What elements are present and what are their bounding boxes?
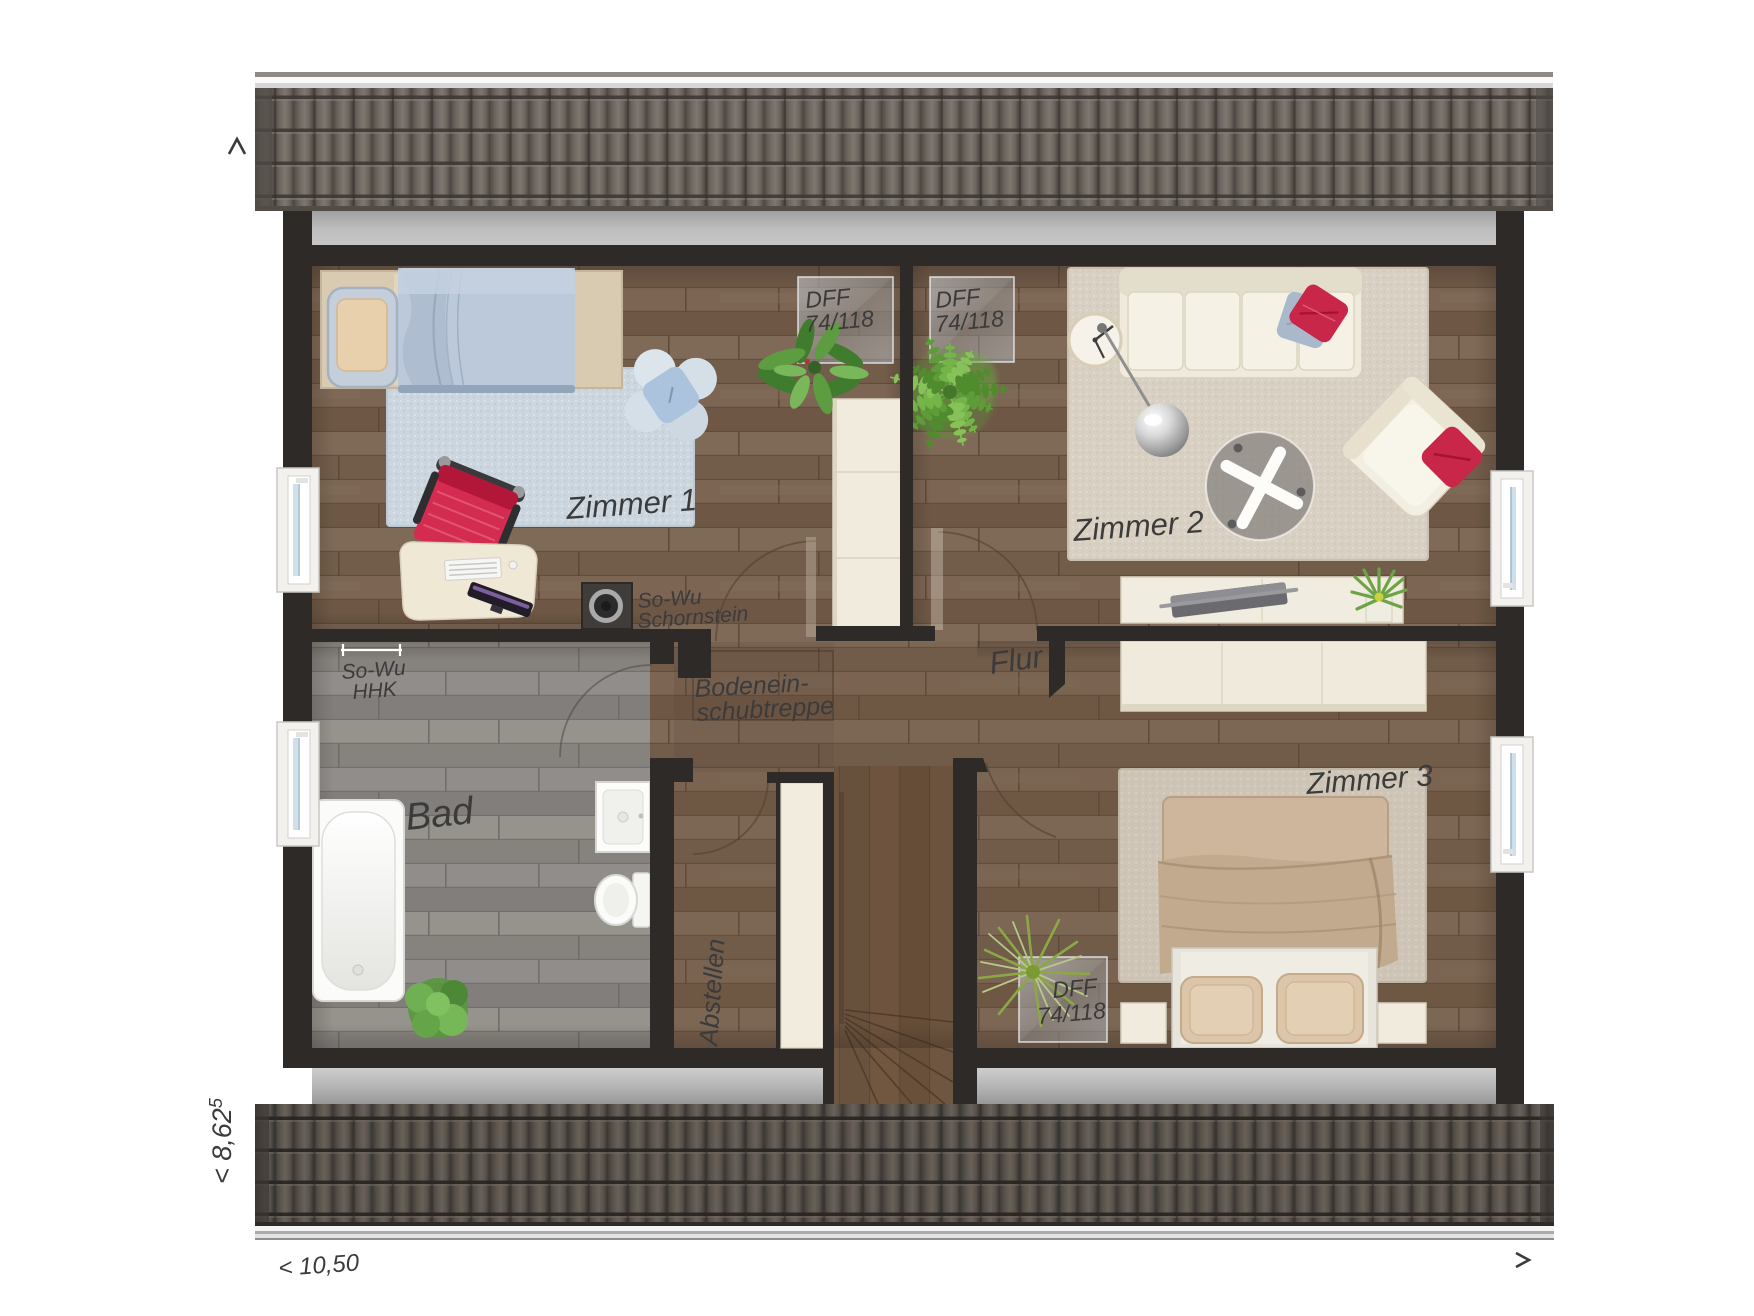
svg-text:< 8,625: < 8,625 <box>206 1097 237 1184</box>
svg-text:< 10,50: < 10,50 <box>278 1249 361 1282</box>
svg-text:HHK: HHK <box>352 678 399 704</box>
svg-text:Bad: Bad <box>404 790 477 839</box>
